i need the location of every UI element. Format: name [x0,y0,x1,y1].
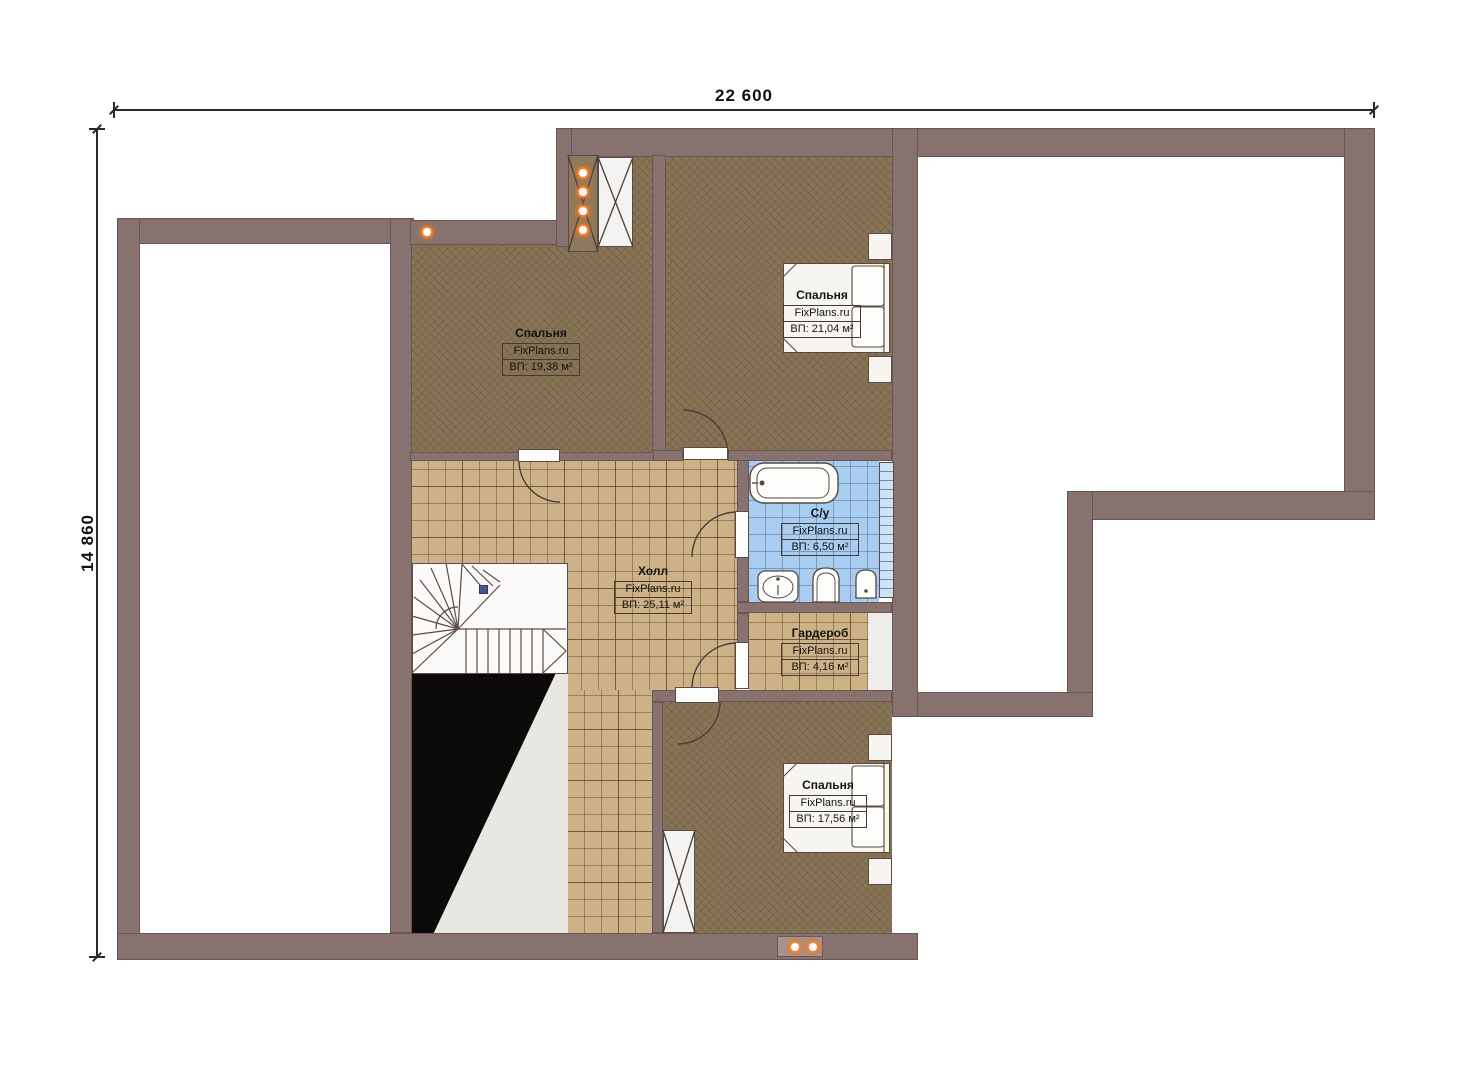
room-area: ВП: 6,50 м² [781,539,859,556]
wall-segment [117,218,140,960]
dimension-width-line [113,109,1375,111]
spotlight-icon [579,188,587,196]
nightstand [868,734,892,761]
wall-segment [558,452,654,461]
wall-segment [560,128,1375,157]
room-name: Спальня [802,778,854,792]
wall-segment [892,692,1093,717]
bedroom-1-floor-strip [633,157,652,247]
stair-void [412,674,568,933]
wall-segment [652,155,666,460]
terrace-right-notch-floor [918,491,1067,692]
room-label-bedroom-1: Спальня FixPlans.ru ВП: 19,38 м² [502,326,580,376]
room-name: Спальня [796,288,848,302]
room-area: ВП: 17,56 м² [789,811,867,828]
dimension-height-line [96,128,98,958]
ventilation-shaft [598,157,633,247]
wall-segment [652,702,663,933]
spotlight-icon [791,943,799,951]
wall-segment [652,450,683,461]
nightstand [868,858,892,885]
door-bedroom-2 [683,447,728,460]
wall-segment [410,220,568,245]
room-area: ВП: 21,04 м² [783,321,861,338]
wall-segment [652,690,676,702]
room-label-bathroom: С/у FixPlans.ru ВП: 6,50 м² [781,506,859,556]
room-brand: FixPlans.ru [789,795,867,812]
nightstand [868,356,892,383]
room-area: ВП: 4,16 м² [781,659,859,676]
room-area: ВП: 19,38 м² [502,359,580,376]
room-brand: FixPlans.ru [614,581,692,598]
window [879,462,894,598]
dimension-width-label: 22 600 [715,86,773,106]
floor-plan-canvas: Спальня FixPlans.ru ВП: 19,38 м² Спальня… [0,0,1474,1080]
spotlight-icon [579,207,587,215]
wall-segment [728,450,892,461]
door-bathroom [735,511,749,558]
room-name: Спальня [515,326,567,340]
room-label-hall: Холл FixPlans.ru ВП: 25,11 м² [614,564,692,614]
room-label-bedroom-3: Спальня FixPlans.ru ВП: 17,56 м² [789,778,867,828]
room-name: Холл [638,564,668,578]
ventilation-shaft [663,830,695,933]
wall-segment [718,690,892,702]
spotlight-icon [579,226,587,234]
terrace-left-floor [140,244,390,933]
wall-segment [892,128,918,717]
wall-segment [737,557,749,602]
hall-floor-strip [568,690,652,933]
stair-marker [479,585,488,594]
door-bedroom-3 [675,687,719,703]
wall-segment [737,613,749,643]
room-area: ВП: 25,11 м² [614,597,692,614]
wall-segment [1067,491,1093,717]
room-label-bedroom-2: Спальня FixPlans.ru ВП: 21,04 м² [783,288,861,338]
spotlight-icon [579,169,587,177]
spotlight-icon [809,943,817,951]
room-brand: FixPlans.ru [781,643,859,660]
wall-segment [737,460,749,512]
room-name: Гардероб [792,626,849,640]
room-brand: FixPlans.ru [781,523,859,540]
wall-segment [410,452,520,461]
room-brand: FixPlans.ru [783,305,861,322]
room-name: С/у [811,506,830,520]
wall-segment [390,218,412,933]
room-label-wardrobe: Гардероб FixPlans.ru ВП: 4,16 м² [781,626,859,676]
dimension-height-label: 14 860 [78,514,98,572]
wardrobe-floor-white [868,613,892,690]
spotlight-icon [423,228,431,236]
nightstand [868,233,892,260]
wall-segment [737,602,892,613]
wall-segment [1344,128,1375,520]
wall-segment [117,218,414,244]
room-brand: FixPlans.ru [502,343,580,360]
terrace-right-floor [918,157,1344,491]
staircase [412,563,568,674]
door-wardrobe [735,642,749,689]
wall-segment [1067,491,1375,520]
door-bedroom-1 [518,449,560,462]
